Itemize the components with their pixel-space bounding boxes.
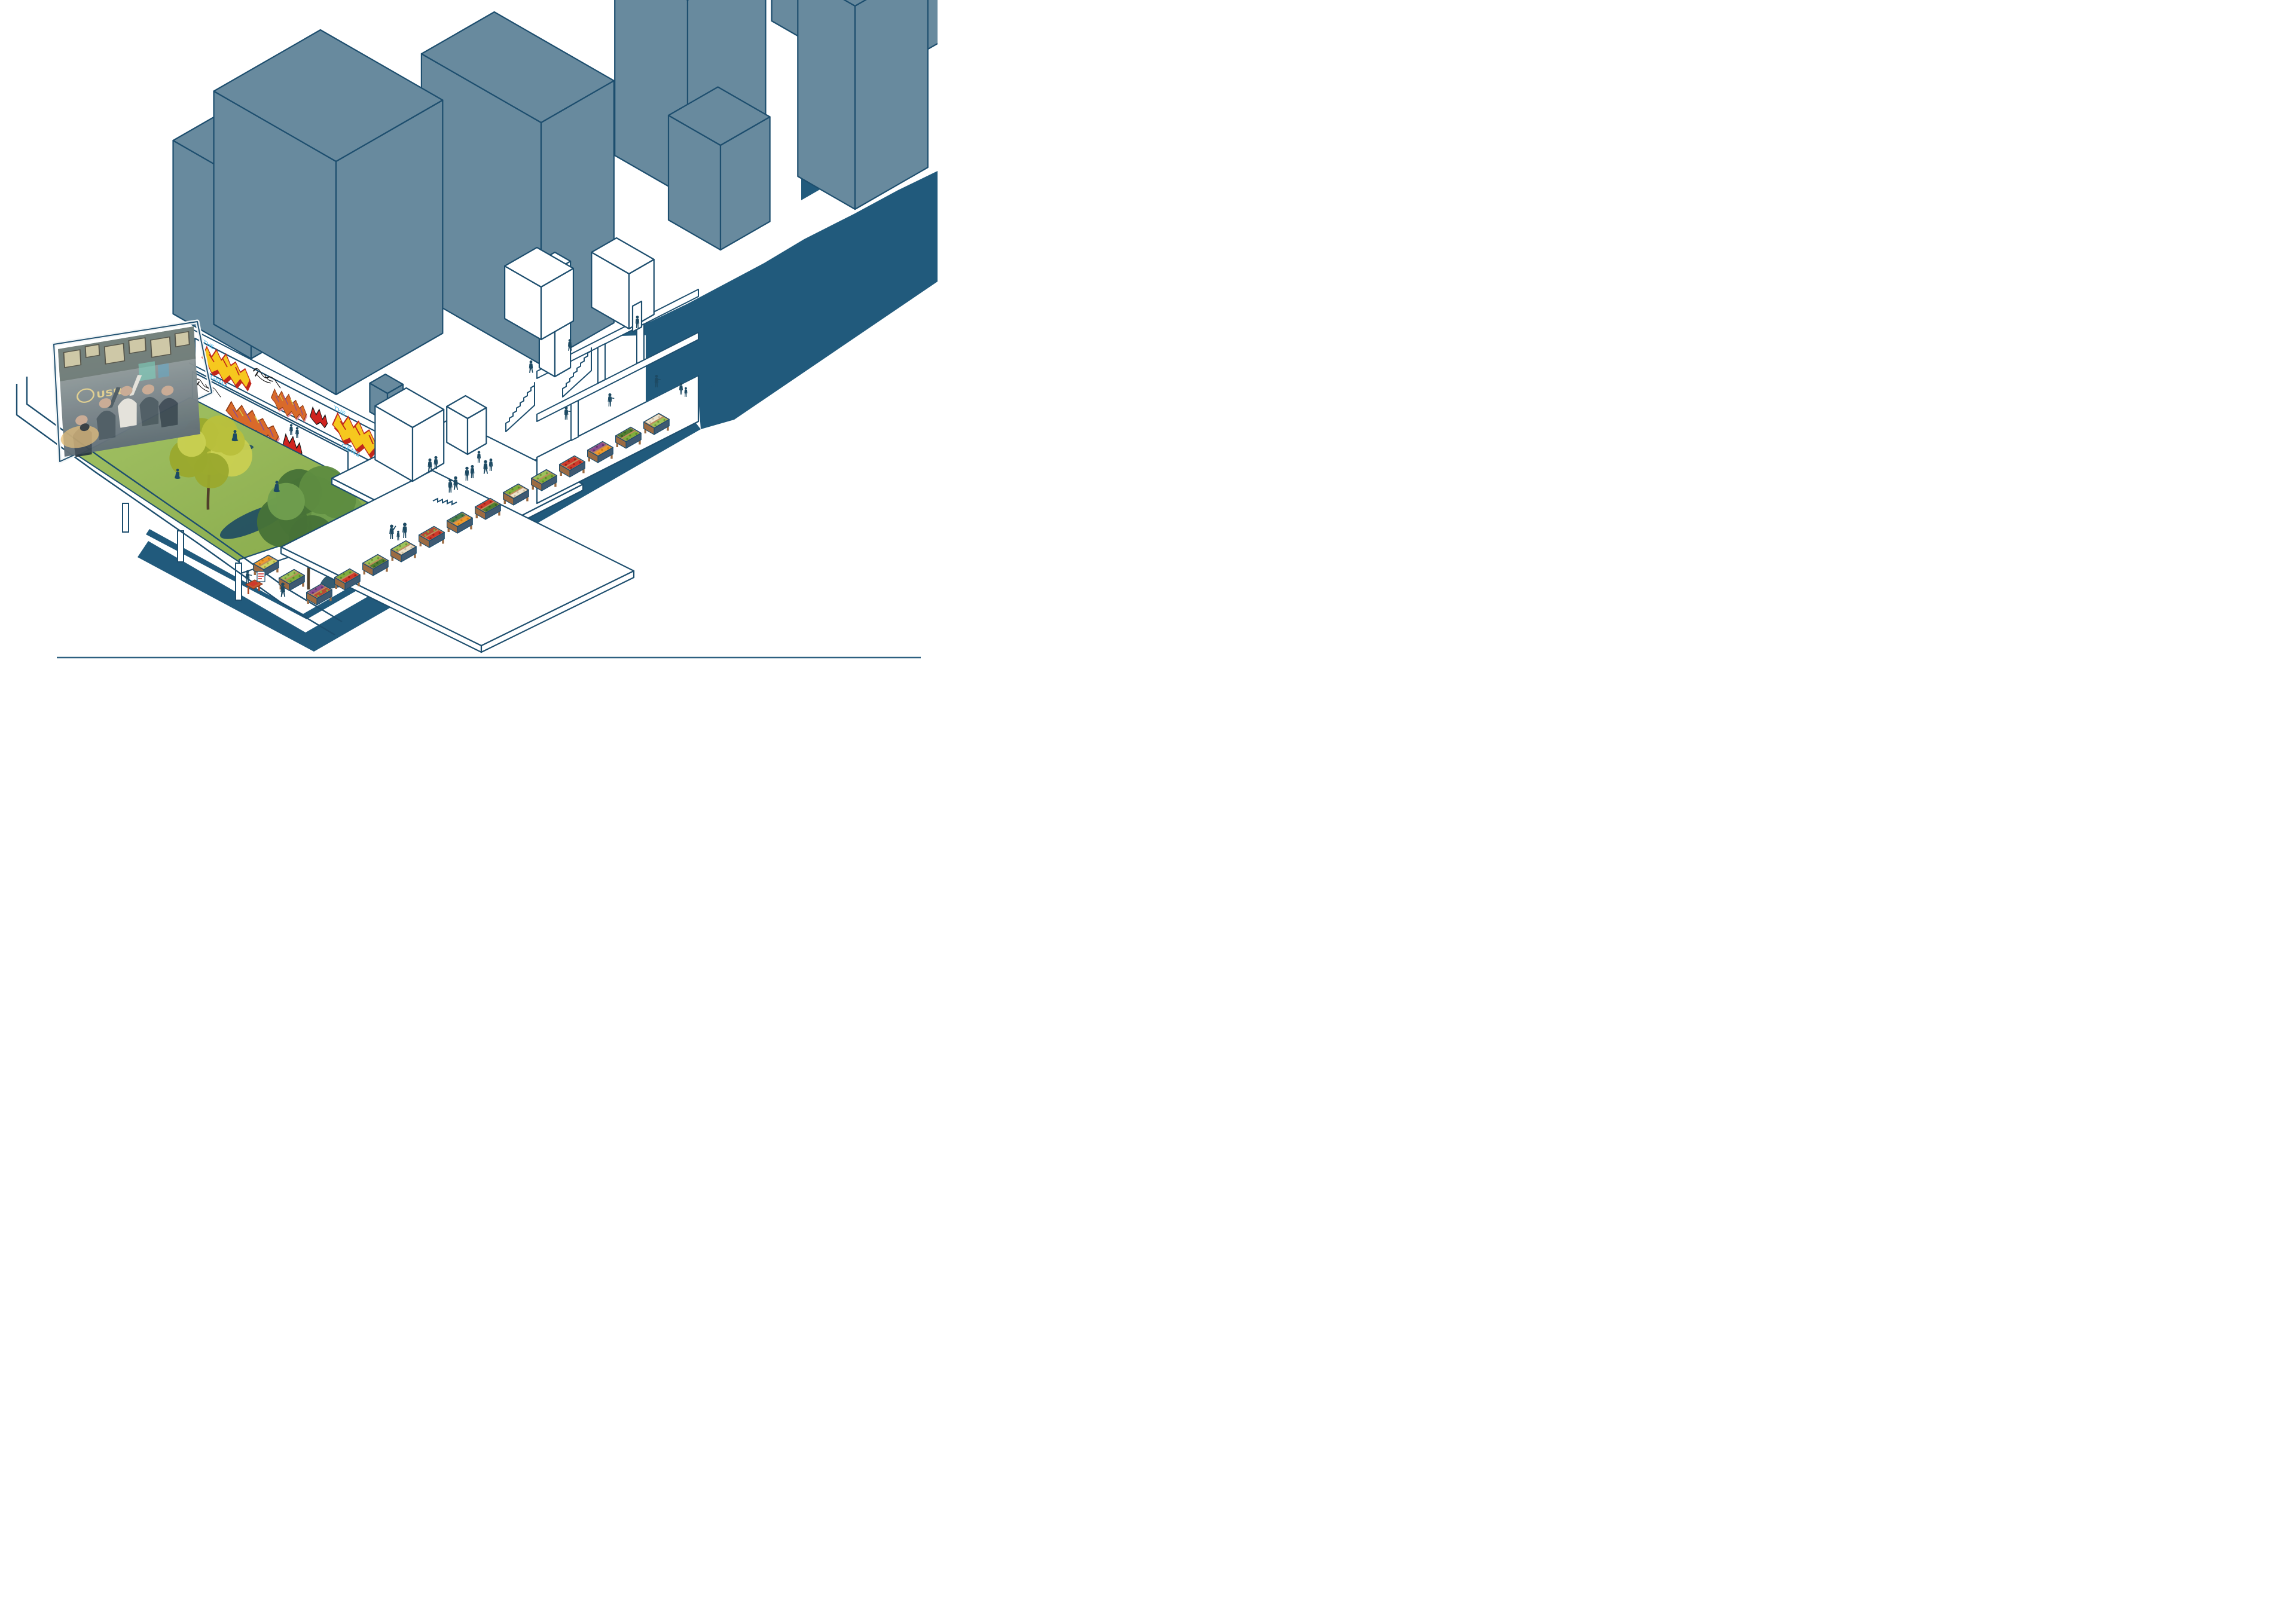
person-walk	[529, 360, 533, 373]
person-body	[529, 363, 533, 373]
produce-dot	[509, 492, 511, 494]
produce-dot	[626, 438, 628, 440]
produce-dot	[511, 488, 513, 490]
person-head	[608, 393, 611, 396]
produce-dot	[326, 589, 328, 591]
interior-pier	[571, 401, 578, 441]
produce-dot	[596, 446, 597, 448]
person-head	[655, 375, 658, 378]
produce-dot	[289, 580, 291, 582]
produce-dot	[299, 575, 301, 577]
interior-pier	[637, 324, 644, 363]
staircase-0	[506, 383, 535, 432]
produce-dot	[259, 563, 261, 565]
produce-dot	[455, 516, 457, 518]
produce-dot	[657, 421, 659, 423]
building-mid-box	[668, 87, 770, 250]
person-head	[448, 479, 451, 482]
produce-dot	[607, 447, 609, 449]
produce-dot	[460, 519, 462, 521]
building-mass-center-left	[214, 30, 443, 395]
person-head	[428, 459, 431, 461]
white-box-white-cube-small	[447, 396, 486, 454]
produce-dot	[514, 495, 515, 497]
person-head	[484, 460, 487, 463]
produce-dot	[574, 459, 576, 460]
produce-dot	[457, 523, 459, 525]
person-head	[176, 469, 179, 472]
tree-canopy-blob	[267, 483, 305, 521]
produce-dot	[518, 487, 520, 488]
person-head	[564, 406, 567, 409]
person-head	[685, 387, 687, 390]
produce-dot	[551, 475, 553, 477]
person-arm-forward	[567, 411, 570, 412]
scene-canvas: THEGEN2THEGEN2SUSN	[0, 0, 938, 662]
produce-dot	[340, 577, 342, 579]
produce-dot	[621, 435, 623, 437]
person-legs-crossed	[232, 439, 239, 441]
produce-dot	[539, 474, 541, 476]
produce-dot	[411, 546, 413, 548]
produce-dot	[486, 509, 487, 511]
produce-dot	[602, 444, 604, 446]
person-head	[434, 456, 437, 459]
produce-dot	[462, 515, 463, 516]
produce-dot	[453, 520, 454, 522]
produce-dot	[355, 574, 356, 576]
person-arm-forward	[249, 574, 252, 576]
produce-dot	[567, 460, 569, 462]
produce-dot	[630, 430, 632, 432]
person-head	[234, 430, 237, 433]
produce-dot	[321, 586, 323, 588]
produce-dot	[292, 577, 294, 579]
produce-dot	[348, 576, 350, 578]
deck-column	[178, 531, 184, 562]
person-head	[636, 316, 639, 319]
produce-dot	[315, 588, 316, 590]
screen-haze	[58, 326, 200, 457]
produce-dot	[405, 543, 407, 545]
produce-dot	[425, 534, 426, 536]
produce-dot	[579, 461, 581, 463]
person-head	[290, 424, 292, 426]
person-head	[281, 583, 285, 586]
person-head	[569, 339, 572, 342]
person-chef	[564, 406, 571, 420]
person-head	[454, 476, 457, 479]
produce-dot	[373, 566, 375, 567]
produce-dot	[312, 592, 314, 594]
person-head	[465, 467, 468, 470]
produce-dot	[349, 571, 351, 573]
produce-dot	[624, 432, 625, 433]
produce-dot	[273, 561, 275, 563]
produce-dot	[573, 463, 575, 465]
produce-dot	[371, 559, 373, 561]
produce-dot	[287, 574, 289, 576]
produce-dot	[285, 577, 286, 579]
produce-dot	[636, 433, 637, 435]
face-left	[798, 0, 855, 209]
stand-leg	[248, 587, 249, 594]
produce-dot	[267, 563, 268, 564]
produce-dot	[523, 490, 525, 491]
person-head	[397, 531, 399, 533]
produce-dot	[467, 518, 469, 519]
produce-dot	[401, 552, 403, 554]
produce-dot	[376, 562, 378, 564]
produce-dot	[652, 418, 654, 420]
person-legs-crossed	[274, 490, 280, 492]
produce-dot	[601, 449, 603, 451]
produce-dot	[399, 545, 401, 547]
produce-dot	[593, 450, 595, 451]
produce-dot	[495, 504, 497, 506]
deck-column	[123, 503, 129, 532]
produce-dot	[429, 537, 431, 539]
produce-dot	[542, 481, 544, 482]
produce-dot	[433, 529, 435, 531]
person-head	[296, 427, 298, 429]
produce-dot	[427, 531, 429, 533]
person-head	[490, 459, 493, 461]
person-chef	[608, 393, 615, 406]
produce-dot	[404, 548, 406, 550]
person-body	[280, 586, 285, 597]
deck-column	[236, 563, 242, 600]
produce-dot	[261, 560, 263, 561]
produce-dot	[658, 416, 660, 418]
produce-dot	[537, 478, 539, 479]
person-head	[680, 383, 683, 386]
tree-canopy-blob	[194, 453, 229, 488]
produce-dot	[649, 421, 651, 423]
person-head	[390, 525, 393, 528]
scene-root: THEGEN2THEGEN2SUSN	[17, 0, 938, 658]
produce-dot	[545, 477, 546, 479]
person-legs-crossed	[175, 477, 181, 479]
produce-dot	[317, 595, 319, 597]
produce-dot	[654, 424, 656, 426]
produce-dot	[439, 532, 441, 534]
person-head	[403, 522, 407, 526]
person-head	[478, 451, 481, 454]
produce-dot	[565, 464, 567, 466]
produce-dot	[483, 503, 485, 505]
person-arm-forward	[611, 398, 614, 399]
produce-dot	[546, 472, 548, 474]
produce-dot	[490, 501, 491, 503]
diagram-stage: THEGEN2THEGEN2SUSN	[0, 0, 938, 662]
produce-dot	[264, 566, 265, 568]
building-slab-right	[798, 0, 928, 209]
person-head	[530, 360, 533, 363]
person-head	[276, 481, 279, 484]
person-head	[471, 465, 474, 468]
produce-dot	[345, 580, 347, 582]
interior-pier	[598, 344, 605, 383]
produce-dot	[377, 557, 379, 559]
produce-dot	[268, 558, 270, 560]
produce-dot	[488, 506, 490, 508]
produce-dot	[396, 549, 398, 551]
produce-dot	[320, 591, 322, 593]
produce-dot	[294, 572, 295, 574]
produce-dot	[432, 534, 434, 536]
produce-dot	[664, 419, 665, 421]
produce-dot	[517, 491, 518, 493]
tree-canopy-blob	[216, 427, 245, 456]
produce-dot	[598, 453, 600, 454]
produce-dot	[343, 573, 344, 575]
produce-dot	[629, 435, 631, 436]
face-right	[855, 0, 928, 209]
produce-dot	[481, 506, 483, 508]
produce-dot	[570, 467, 572, 469]
produce-dot	[383, 560, 384, 562]
produce-dot	[368, 563, 370, 564]
person-head	[246, 570, 249, 573]
